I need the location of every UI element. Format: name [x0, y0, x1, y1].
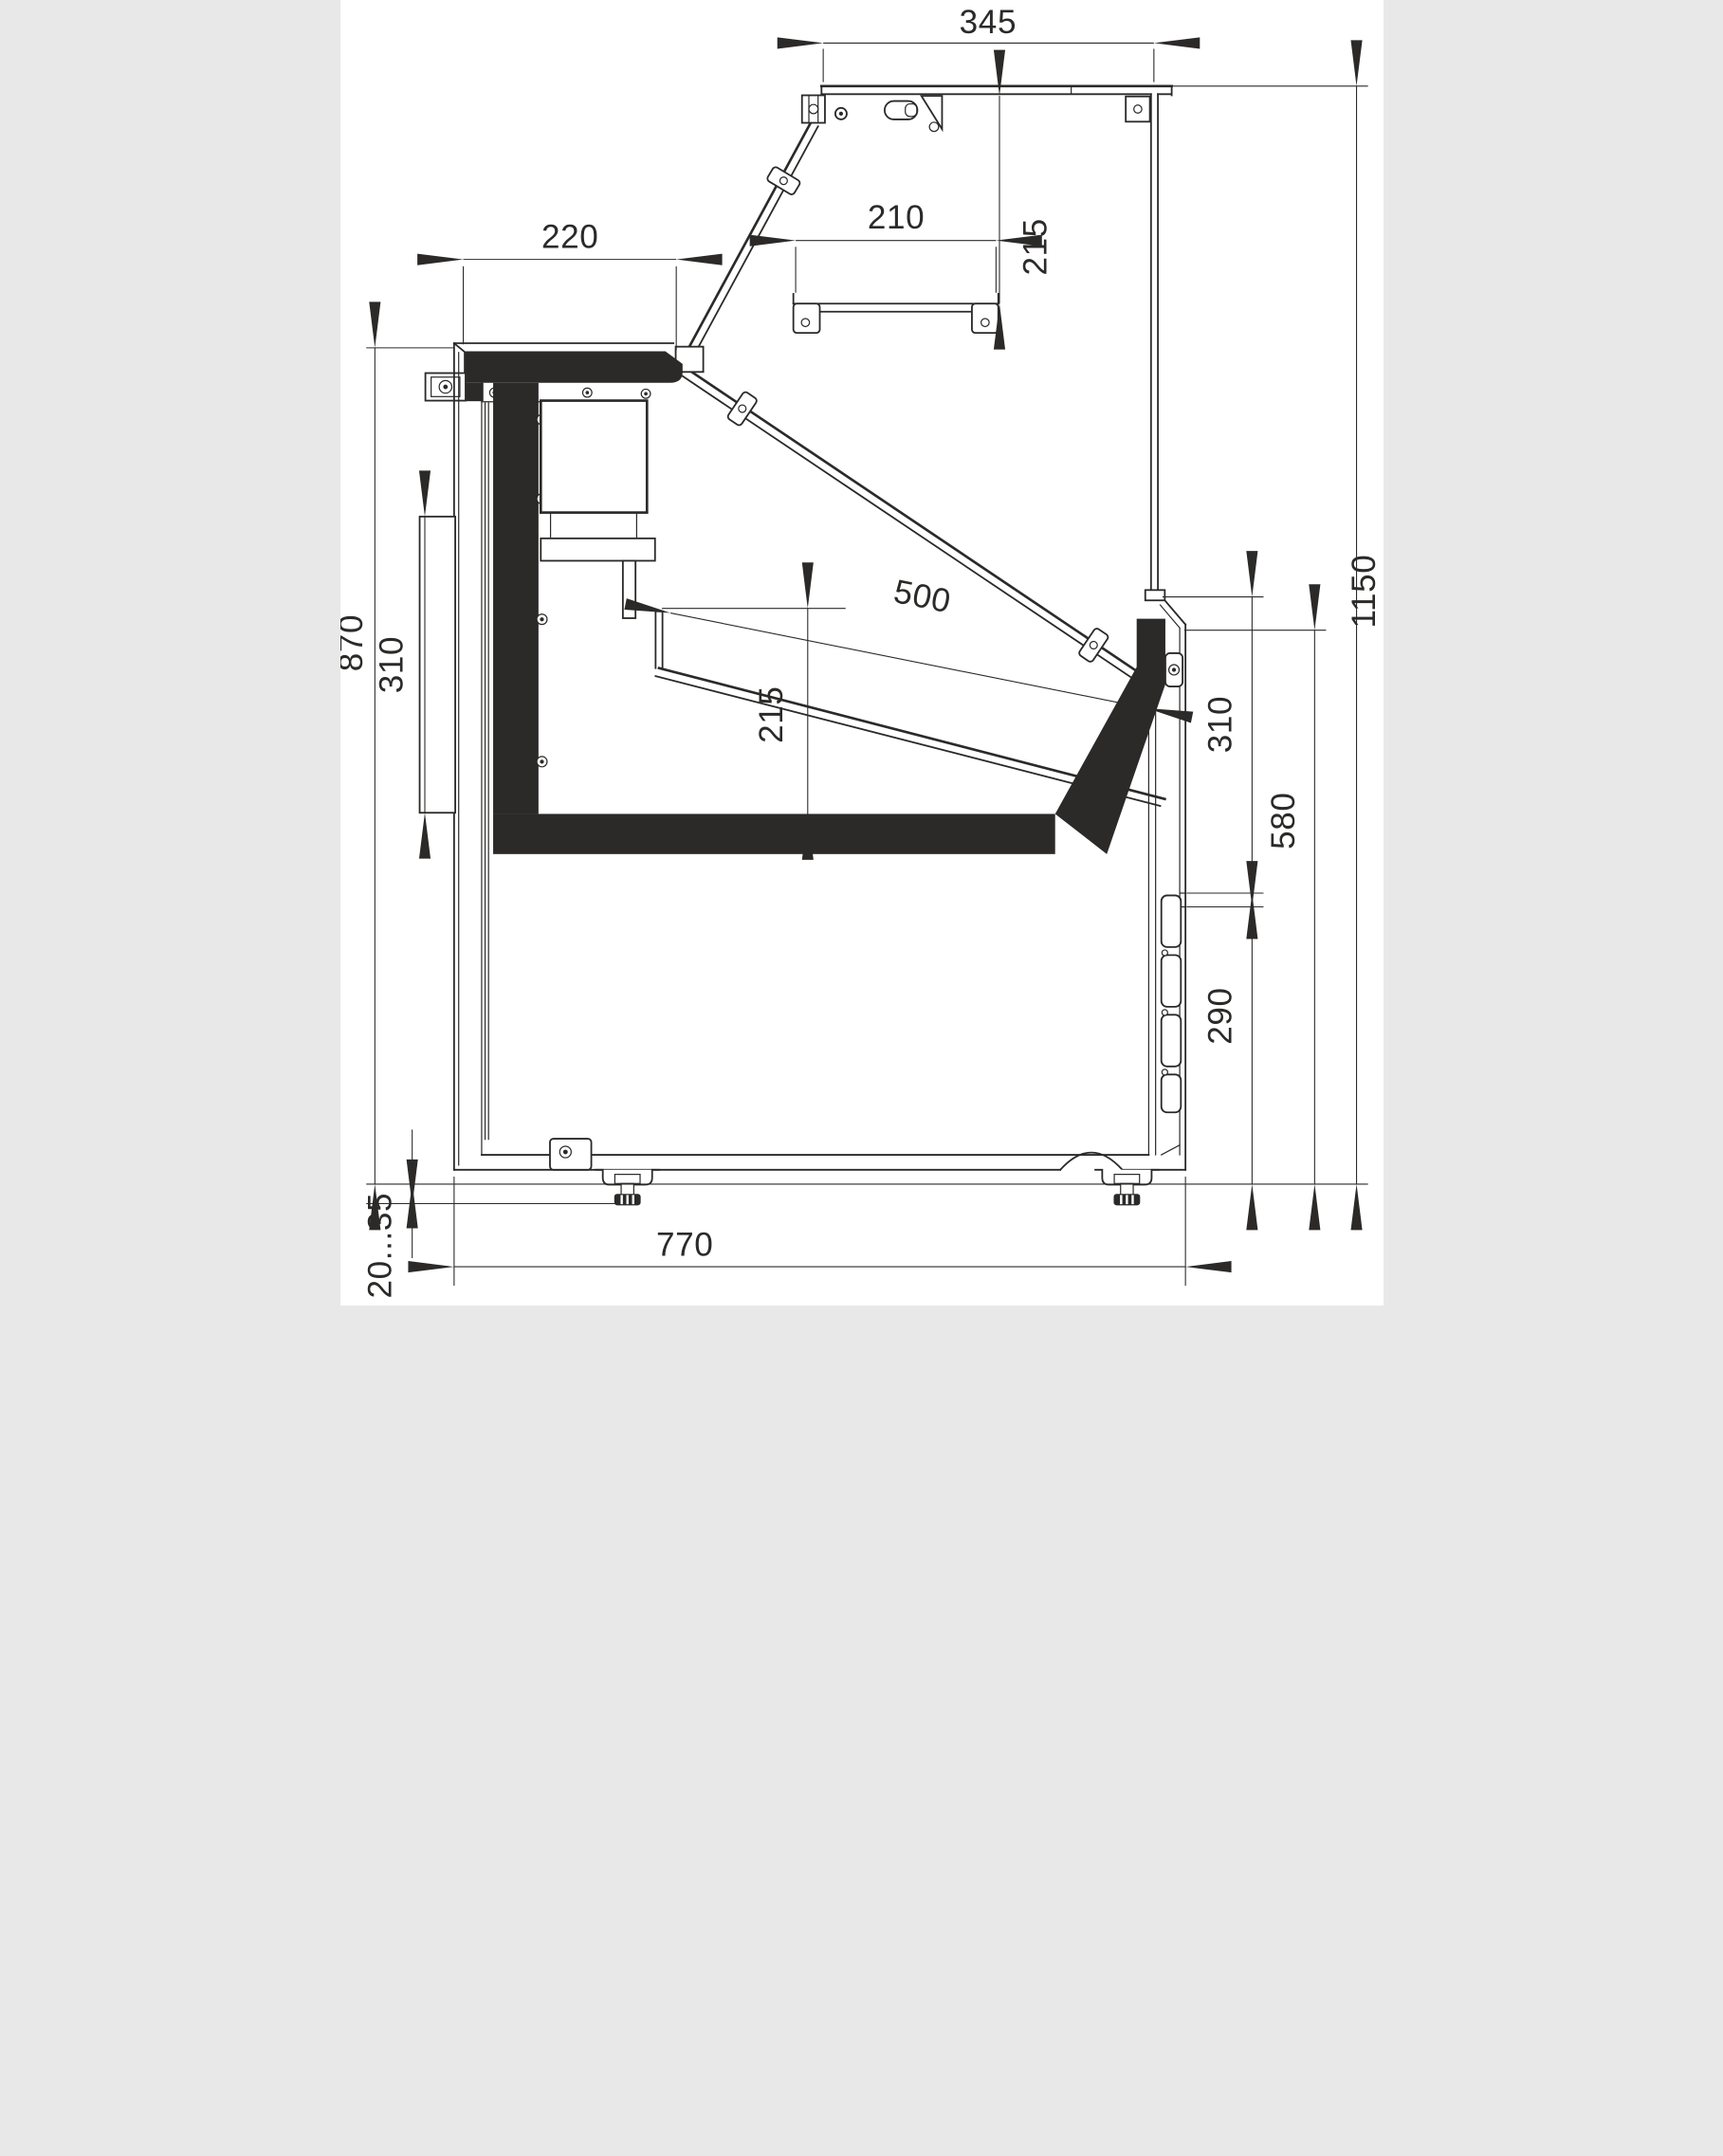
- dim-label-display-opening: 500: [890, 573, 954, 620]
- rear-wall: [453, 343, 487, 1170]
- dimension-345: 345: [823, 4, 1154, 82]
- dim-label-top-depth: 345: [959, 4, 1016, 41]
- canopy-hinge: [801, 95, 824, 122]
- adjustable-foot-left: [596, 1170, 659, 1206]
- dim-label-grille-height: 290: [1201, 987, 1238, 1044]
- dimension-215-canopy: 215: [999, 96, 1054, 303]
- dimension-220: 220: [463, 219, 676, 351]
- dim-label-rear-bumper-height: 310: [373, 636, 410, 693]
- dim-label-front-lower-height: 580: [1265, 793, 1302, 850]
- dimension-310-right: 310: [1162, 597, 1263, 893]
- dim-label-base-depth: 770: [656, 1227, 713, 1264]
- display-case-section-drawing: 345 215 220 210 500 215 310 870: [340, 0, 1384, 1306]
- dim-label-worktop-depth: 220: [541, 219, 597, 256]
- front-glass: [1145, 94, 1164, 600]
- dim-label-glass-to-grille: 310: [1201, 696, 1238, 753]
- dimension-310-left: 310: [373, 517, 425, 813]
- dim-label-worktop-height: 870: [340, 614, 370, 671]
- adjustable-foot-right: [1095, 1170, 1159, 1206]
- dimension-215-well: 215: [662, 609, 846, 814]
- base-corner-bracket: [549, 1139, 591, 1170]
- dim-label-canopy-to-shelf: 215: [1017, 218, 1054, 275]
- inner-sloped-glass: [675, 347, 1147, 685]
- drawing-sheet: 345 215 220 210 500 215 310 870: [340, 0, 1384, 1306]
- screw-icon: [834, 108, 846, 119]
- dim-label-well-inner-depth: 215: [753, 686, 790, 743]
- canopy-shelf: [793, 294, 998, 333]
- worktop-left-fitting: [425, 374, 465, 401]
- ventilation-louvers: [1161, 895, 1181, 1112]
- worktop: [453, 343, 682, 402]
- dimension-1150: 1150: [1161, 86, 1382, 1184]
- dim-label-shelf-width: 210: [867, 199, 924, 236]
- dimension-770: 770: [453, 1177, 1184, 1286]
- canopy: [821, 86, 1171, 100]
- base-frame: [453, 1139, 1184, 1170]
- dimension-210: 210: [796, 199, 996, 293]
- evaporator: [541, 401, 654, 618]
- glass-clamp-bracket: [1164, 653, 1182, 686]
- gas-spring: [884, 96, 942, 132]
- dim-label-foot-adjust-range: 20...35: [361, 1193, 398, 1299]
- canopy-back-bracket: [1126, 97, 1149, 122]
- dim-label-overall-height: 1150: [1345, 555, 1382, 629]
- dimension-290: 290: [1186, 907, 1263, 1184]
